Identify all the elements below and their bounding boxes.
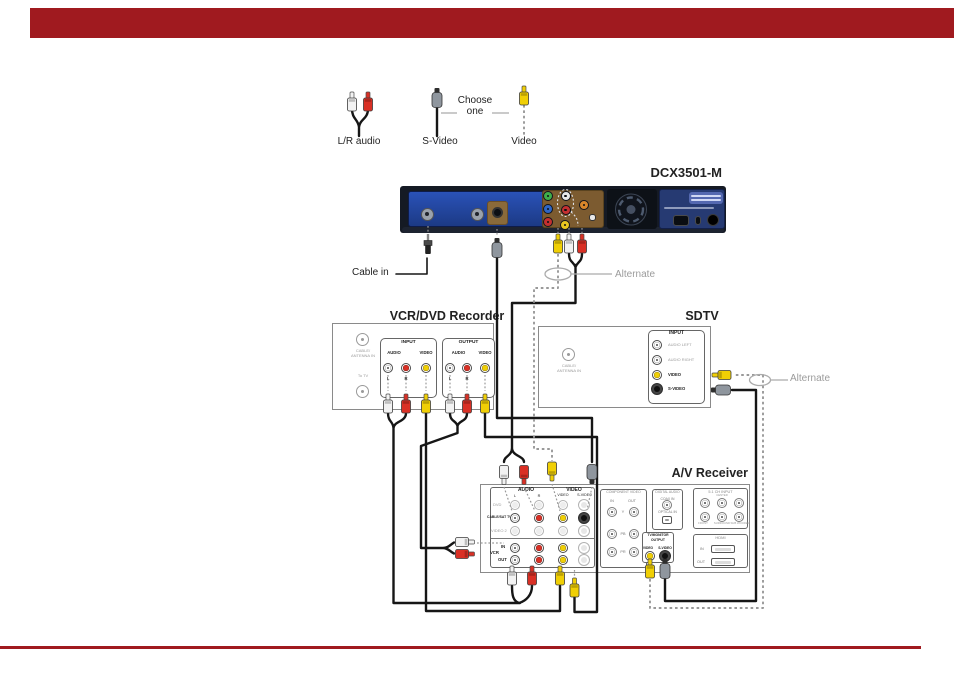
recorder-to-tv-port	[356, 385, 369, 398]
sdtv-audio-right-jack	[652, 355, 662, 365]
recorder-input-video-jack	[421, 363, 431, 373]
dcx-sticker-line-2	[691, 199, 721, 201]
receiver-hdmi-header: HDMI	[693, 536, 748, 540]
legend-white-rca-connector	[348, 92, 357, 111]
receiver-row-video2-label: VIDEO 2	[491, 529, 511, 533]
dcx-coax-out-port	[471, 208, 484, 221]
receiver-vcr-in-r-jack	[534, 543, 544, 553]
receiver-comp-pb-label: PB	[617, 532, 629, 536]
legend-lr-audio-label: L/R audio	[330, 137, 388, 148]
legend-connectors	[348, 86, 529, 111]
dcx-video-jack	[560, 220, 570, 230]
sdtv-antenna-in-port	[562, 348, 575, 361]
recorder-to-tv-label: To TV	[345, 374, 381, 378]
dcx-model-label: DCX3501-M	[600, 166, 722, 180]
alternate-label-1: Alternate	[615, 270, 675, 281]
receiver-comp-pr-label: PR	[617, 550, 629, 554]
legend-yellow-rca-connector	[520, 86, 529, 105]
alternate-marker-2	[750, 375, 789, 386]
recorder-output-video-jack	[480, 363, 490, 373]
legend-choose-one-label: Choose one	[452, 95, 498, 117]
receiver-optical-port	[662, 516, 672, 524]
receiver-comp-y-in-jack	[607, 507, 617, 517]
sdtv-s-video-jack	[651, 383, 663, 395]
dcx-optical-port	[589, 214, 596, 221]
receiver-row-dvd-label: DVD	[493, 503, 509, 507]
receiver-cablesat-s-video-connector	[587, 465, 597, 485]
dcx-audio-r-connector	[578, 234, 587, 253]
dcx-video-connector	[554, 234, 563, 253]
sdtv-cable-antenna-label-2: ANTENNA IN	[545, 369, 593, 373]
recorder-output-audio-l-jack	[445, 363, 455, 373]
receiver-hdmi-out-label: OUT	[697, 560, 710, 564]
receiver-comp-y-out-jack	[629, 507, 639, 517]
receiver-dvd-video-jack	[558, 500, 568, 510]
receiver-top-connectors	[500, 462, 598, 485]
dcx-component-pr-jack	[543, 217, 553, 227]
recorder-output-audio-label: AUDIO	[442, 351, 475, 356]
recorder-output-video-label: VIDEO	[472, 351, 498, 356]
dcx-component-y-jack	[543, 191, 553, 201]
receiver-r-col-label: R	[536, 494, 542, 498]
dcx-s-video-connector	[492, 238, 502, 258]
receiver-comp-pb-out-jack	[629, 529, 639, 539]
sdtv-video-jack	[652, 370, 662, 380]
receiver-tv-monitor-header-2: OUTPUT	[642, 539, 674, 543]
receiver-cablesat-l-jack	[510, 513, 520, 523]
receiver-coax-in-jack	[662, 500, 672, 510]
sdtv-s-video-label: S-VIDEO	[668, 387, 698, 392]
alternate-marker-1	[545, 268, 612, 280]
receiver-cablesat-s-video-jack	[578, 512, 590, 524]
recorder-output-r-label: R	[464, 377, 470, 382]
sdtv-connectors	[711, 371, 731, 396]
receiver-tvm-s-video-jack	[659, 550, 671, 562]
receiver-vcr-in-video-jack	[558, 543, 568, 553]
manual-page: L/R audio S-Video Video Choose one DCX35…	[0, 0, 954, 673]
recorder-antenna-in-port	[356, 333, 369, 346]
receiver-comp-out-label: OUT	[625, 499, 639, 503]
dcx-audio-r-jack	[561, 205, 571, 215]
dcx-ethernet-port	[673, 215, 689, 226]
receiver-hdmi-in-label: IN	[700, 547, 710, 551]
receiver-optical-in-label: OPTICAL IN	[652, 511, 683, 515]
receiver-vcr-in-s-video-jack	[578, 542, 590, 554]
recorder-output-label: OUTPUT	[442, 340, 495, 345]
receiver-51ch-center-label: CENTER	[713, 494, 731, 497]
dcx-component-pb-jack	[543, 204, 553, 214]
recorder-output-audio-r-jack	[462, 363, 472, 373]
dcx-audio-l-connector	[565, 234, 574, 253]
dcx-connectors	[424, 234, 587, 258]
sdtv-s-video-connector	[711, 385, 731, 395]
sdtv-video-label: VIDEO	[668, 373, 698, 378]
dcx-fan-block	[607, 189, 657, 229]
receiver-vcr-label: VCR	[490, 551, 504, 556]
route-recorder-output-audio-to-vcrin	[421, 413, 467, 554]
recorder-input-video-label: VIDEO	[413, 351, 439, 356]
receiver-vcrin-r-connector	[456, 550, 475, 559]
receiver-51ch-jack-3	[734, 498, 744, 508]
receiver-hdmi-out-port	[711, 558, 735, 566]
recorder-output-l-label: L	[447, 377, 453, 382]
sdtv-audio-left-jack	[652, 340, 662, 350]
receiver-hdmi-in-port	[711, 545, 735, 553]
receiver-video2-r-jack	[534, 526, 544, 536]
recorder-title: VCR/DVD Recorder	[347, 310, 547, 324]
footer-rule	[0, 646, 921, 649]
sdtv-audio-right-label: AUDIO RIGHT	[668, 358, 704, 362]
sdtv-audio-left-label: AUDIO LEFT	[668, 343, 704, 347]
receiver-component-header: COMPONENT VIDEO	[600, 491, 647, 495]
receiver-video2-video-jack	[558, 526, 568, 536]
receiver-comp-pb-in-jack	[607, 529, 617, 539]
cable-in-label: Cable in	[352, 268, 398, 279]
dcx-digital-coax-jack	[579, 200, 589, 210]
receiver-dvd-s-video-jack	[578, 499, 590, 511]
sdtv-video-connector	[712, 371, 731, 380]
receiver-title: A/V Receiver	[628, 467, 748, 481]
legend-video-label: Video	[495, 137, 553, 148]
sdtv-input-label: INPUT	[648, 331, 705, 336]
receiver-video2-s-video-jack	[578, 525, 590, 537]
receiver-cablesat-r-jack	[534, 513, 544, 523]
receiver-cablesat-l-connector	[500, 466, 509, 485]
header-bar	[30, 8, 954, 38]
receiver-dvd-r-jack	[534, 500, 544, 510]
receiver-vcrin-video-connector	[570, 578, 579, 597]
dcx-info-sticker	[689, 192, 723, 204]
dcx-cable-in-port	[421, 208, 434, 221]
receiver-dvd-l-jack	[510, 500, 520, 510]
recorder-input-audio-l-jack	[383, 363, 393, 373]
sdtv-title: SDTV	[647, 310, 757, 324]
receiver-vcr-in-l-jack	[510, 543, 520, 553]
receiver-s-video-col-label: S-VIDEO	[573, 494, 596, 498]
receiver-comp-pr-in-jack	[607, 547, 617, 557]
alternate-label-2: Alternate	[790, 374, 850, 385]
receiver-cablesat-video-jack	[558, 513, 568, 523]
dcx-power-port	[707, 214, 719, 226]
receiver-51ch-jack-1	[700, 498, 710, 508]
dcx-sticker-line-1	[691, 195, 721, 197]
receiver-vcr-out-l-jack	[510, 555, 520, 565]
receiver-video2-l-jack	[510, 526, 520, 536]
dcx-audio-l-jack	[561, 191, 571, 201]
receiver-comp-y-label: Y	[618, 510, 628, 514]
dcx-label-text-line	[664, 207, 714, 209]
receiver-51ch-jack-2	[717, 498, 727, 508]
dcx-coax-cable-connector	[424, 234, 432, 254]
receiver-digital-audio-header: DIGITAL AUDIO	[652, 491, 683, 495]
receiver-comp-in-label: IN	[606, 499, 618, 503]
legend-lr-audio-cable	[352, 109, 368, 136]
receiver-vcr-out-video-jack	[558, 555, 568, 565]
receiver-tvm-video-jack	[645, 551, 655, 561]
recorder-input-audio-label: AUDIO	[377, 351, 411, 356]
receiver-51ch-front-label: FRONT	[696, 522, 710, 525]
legend-s-video-label: S-Video	[411, 137, 469, 148]
dcx-svideo-port	[492, 207, 503, 218]
legend-s-video-connector	[432, 88, 442, 108]
recorder-input-l-label: L	[385, 377, 391, 382]
receiver-cablesat-r-connector	[520, 466, 529, 485]
recorder-input-r-label: R	[403, 377, 409, 382]
recorder-input-audio-r-jack	[401, 363, 411, 373]
receiver-vcr-out-r-jack	[534, 555, 544, 565]
dcx-usb-port	[695, 216, 701, 225]
recorder-input-label: INPUT	[380, 340, 437, 345]
receiver-row-cable-sat-label: CABLE/SAT TV	[487, 516, 510, 520]
receiver-vcr-divider	[491, 538, 594, 539]
receiver-l-col-label: L	[512, 494, 518, 498]
receiver-video-col-label: VIDEO	[551, 494, 575, 498]
cable-in-leader-line	[396, 258, 427, 274]
receiver-vcr-out-s-video-jack	[578, 554, 590, 566]
receiver-audio-header: AUDIO	[506, 488, 546, 493]
receiver-vcrin-l-connector	[456, 538, 475, 547]
legend-red-rca-connector	[364, 92, 373, 111]
receiver-cablesat-video-connector	[548, 462, 557, 481]
receiver-51ch-sub-label: SUB WOOFER	[730, 522, 750, 525]
